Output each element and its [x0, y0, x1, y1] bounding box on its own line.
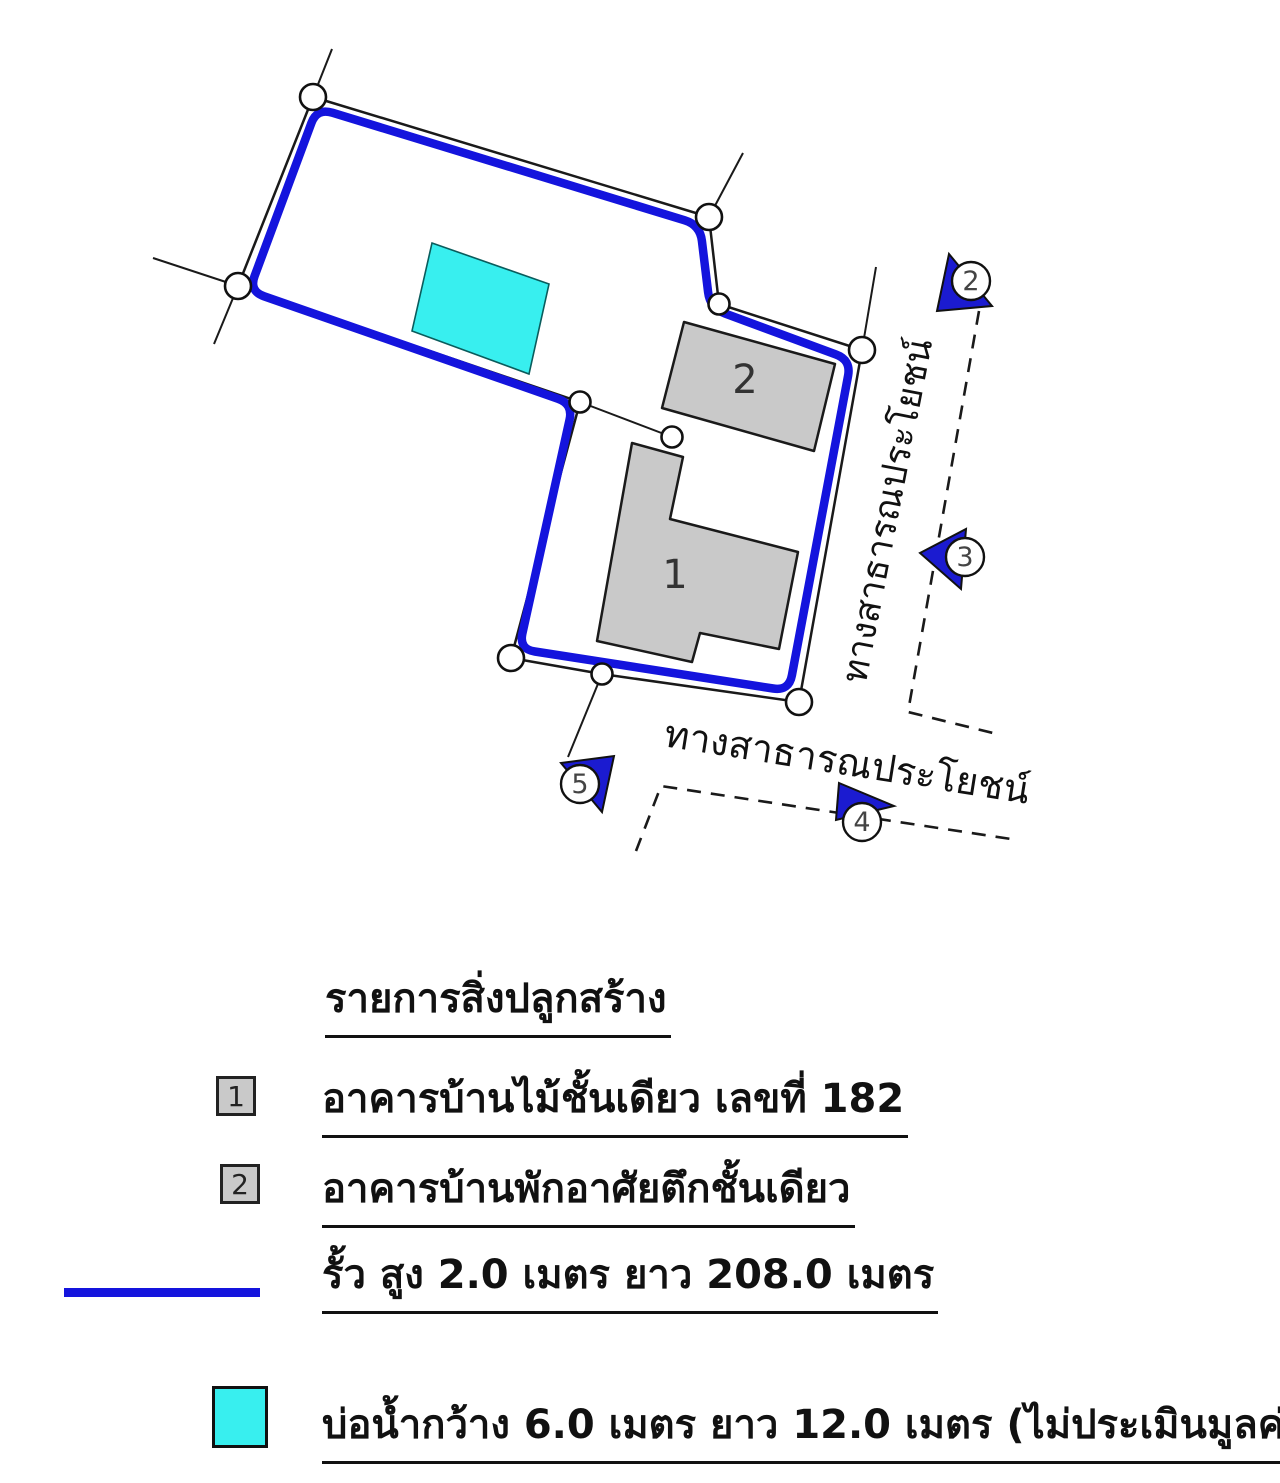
legend-label-building-2: อาคารบ้านพักอาศัยตึกชั้นเดียว — [322, 1156, 855, 1228]
legend-swatch-pond — [212, 1386, 268, 1448]
marker-number-4: 4 — [853, 807, 870, 838]
building-1-label: 1 — [662, 552, 687, 598]
survey-point — [662, 427, 683, 448]
site-plan-svg: 122345ทางสาธารณประโยชน์ทางสาธารณประโยชน์ — [0, 0, 1280, 900]
legend-label-building-1: อาคารบ้านไม้ชั้นเดียว เลขที่ 182 — [322, 1066, 908, 1138]
marker-number-2: 2 — [962, 266, 979, 297]
legend-swatch-fence-line — [64, 1288, 260, 1297]
marker-number-3: 3 — [956, 542, 973, 573]
survey-point — [498, 645, 524, 671]
survey-point — [300, 84, 326, 110]
legend-label-fence: รั้ว สูง 2.0 เมตร ยาว 208.0 เมตร — [322, 1242, 938, 1314]
legend-swatch-building-2: 2 — [220, 1164, 260, 1204]
survey-point — [709, 294, 730, 315]
survey-point — [849, 337, 875, 363]
building-2-label: 2 — [732, 357, 757, 403]
marker-number-5: 5 — [571, 769, 588, 800]
survey-point — [225, 273, 251, 299]
survey-point — [592, 664, 613, 685]
legend-label-pond: บ่อน้ำกว้าง 6.0 เมตร ยาว 12.0 เมตร (ไม่ป… — [322, 1392, 1280, 1464]
survey-extension-line — [568, 674, 602, 757]
legend-building-2-number: 2 — [231, 1168, 249, 1201]
survey-point — [570, 392, 591, 413]
legend-swatch-building-1: 1 — [216, 1076, 256, 1116]
legend-building-1-number: 1 — [227, 1080, 245, 1113]
survey-point — [696, 204, 722, 230]
survey-point — [786, 689, 812, 715]
legend-title: รายการสิ่งปลูกสร้าง — [325, 966, 671, 1038]
survey-sketch-page: 122345ทางสาธารณประโยชน์ทางสาธารณประโยชน์… — [0, 0, 1280, 1483]
